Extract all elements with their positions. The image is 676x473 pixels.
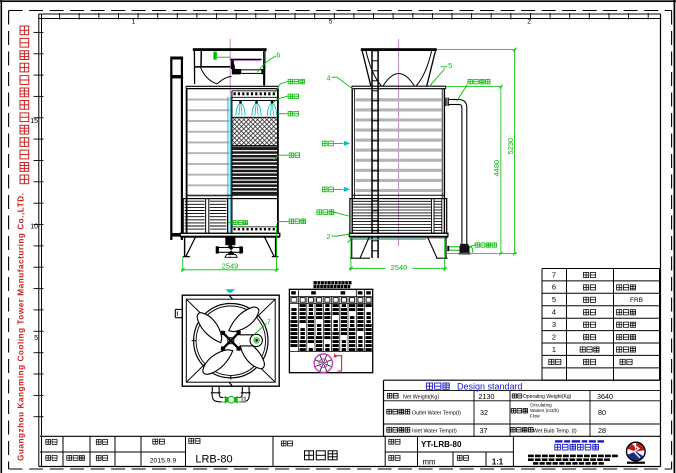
svg-text:4: 4 [552,308,556,317]
svg-text:2: 2 [327,234,331,241]
svg-text:6: 6 [276,53,280,60]
svg-text:FRB: FRB [630,297,643,304]
svg-text:Inlet Water Temp(t): Inlet Water Temp(t) [412,429,457,435]
svg-text:Net Weight(Kg): Net Weight(Kg) [403,394,439,400]
svg-text:15: 15 [30,118,38,125]
svg-text:2: 2 [527,19,531,26]
svg-text:2549: 2549 [222,262,239,271]
svg-text:80: 80 [598,408,606,417]
svg-text:Circulating: Circulating [530,402,552,407]
svg-text:4: 4 [327,75,331,82]
svg-text:3640: 3640 [597,392,613,401]
svg-text:1:1: 1:1 [492,457,504,466]
svg-text:YT-LRB-80: YT-LRB-80 [421,440,462,449]
svg-text:Waters (m3/h): Waters (m3/h) [530,408,559,413]
svg-text:32: 32 [480,408,488,417]
svg-text:Flow: Flow [530,414,540,419]
svg-text:Outlet Water Temp(t): Outlet Water Temp(t) [412,410,461,416]
svg-text:7: 7 [552,270,556,279]
svg-text:10: 10 [30,224,38,231]
svg-text:3: 3 [552,320,556,329]
svg-text:5: 5 [552,295,556,304]
svg-text:Operating Weight(Kg): Operating Weight(Kg) [523,394,572,400]
svg-text:Guangzhou Kangming Cooling Tow: Guangzhou Kangming Cooling Tower Manufac… [17,193,26,461]
svg-text:1: 1 [132,19,136,26]
svg-text:1: 1 [552,345,556,354]
svg-text:LRB-80: LRB-80 [195,454,232,466]
svg-text:4480: 4480 [492,160,501,177]
svg-text:5230: 5230 [506,138,515,155]
svg-text:mm: mm [423,457,436,466]
svg-text:Wet Bulb Temp. (t): Wet Bulb Temp. (t) [533,429,577,435]
svg-text:2015.9.9: 2015.9.9 [150,457,177,464]
svg-text:28: 28 [598,426,606,435]
svg-text:2130: 2130 [479,392,495,401]
svg-text:6: 6 [552,283,556,292]
svg-text:5: 5 [34,335,38,342]
svg-text:37: 37 [480,426,488,435]
svg-text:2540: 2540 [391,263,408,272]
svg-text:Design standard: Design standard [457,382,523,392]
svg-text:5: 5 [448,61,452,70]
svg-text:7: 7 [267,319,271,326]
svg-text:2: 2 [552,332,556,341]
svg-text:5: 5 [329,19,333,26]
